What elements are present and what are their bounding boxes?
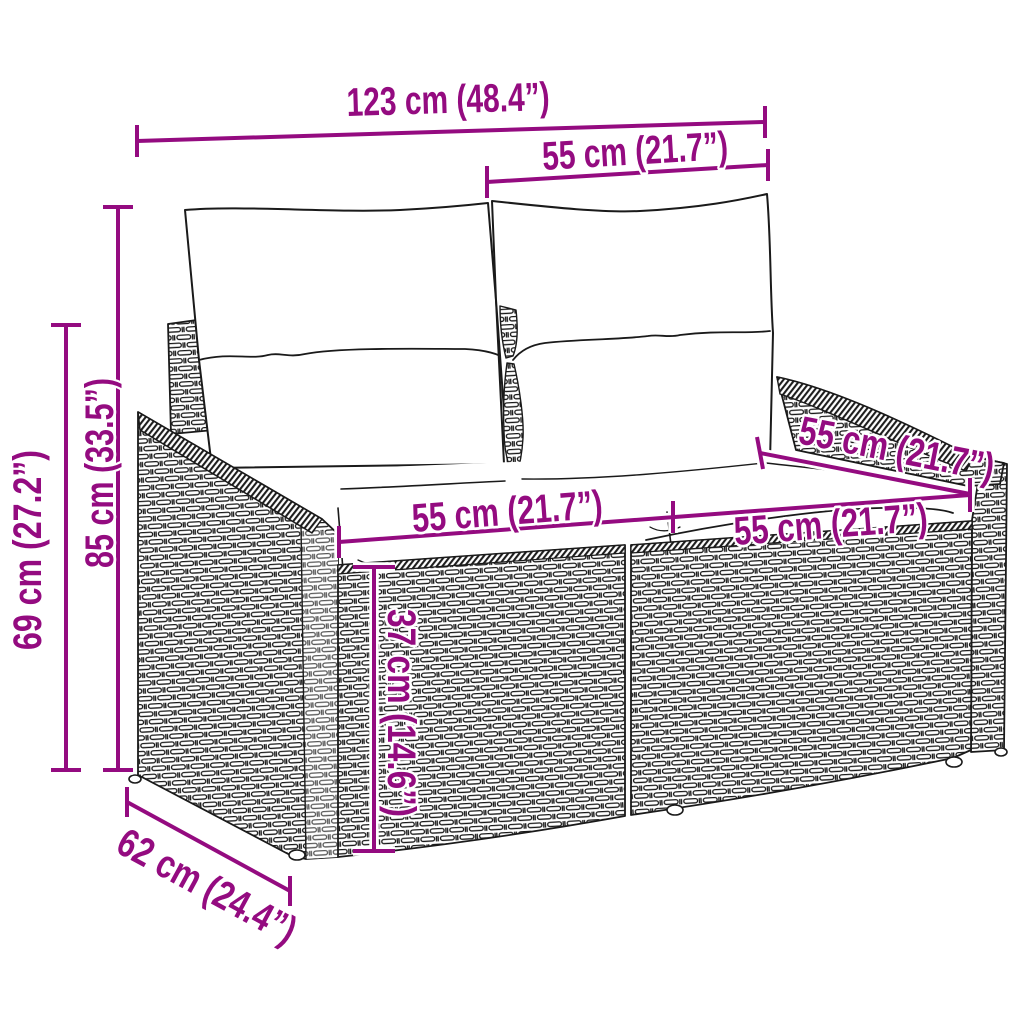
svg-text:123 cm (48.4”): 123 cm (48.4”) xyxy=(346,75,550,125)
svg-text:37 cm (14.6”): 37 cm (14.6”) xyxy=(379,609,423,817)
svg-text:69 cm (27.2”): 69 cm (27.2”) xyxy=(6,450,50,650)
svg-text:85 cm (33.5”): 85 cm (33.5”) xyxy=(78,378,122,568)
